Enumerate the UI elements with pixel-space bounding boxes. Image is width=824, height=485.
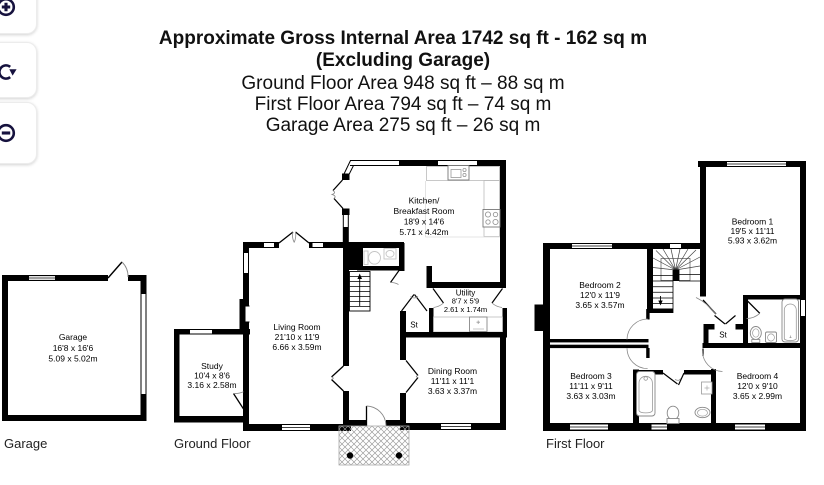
svg-text:3.65 x 2.99m: 3.65 x 2.99m: [733, 391, 782, 401]
svg-text:11'11 x 11'1: 11'11 x 11'1: [431, 376, 475, 386]
svg-text:Breakfast Room: Breakfast Room: [394, 206, 455, 216]
svg-text:3.16 x 2.58m: 3.16 x 2.58m: [187, 380, 236, 390]
svg-text:Study: Study: [201, 361, 223, 371]
svg-text:3.65 x 3.57m: 3.65 x 3.57m: [575, 300, 624, 310]
svg-text:St: St: [410, 321, 418, 330]
svg-text:St: St: [719, 331, 727, 340]
svg-text:Bedroom 2: Bedroom 2: [579, 280, 621, 290]
svg-text:5.09 x 5.02m: 5.09 x 5.02m: [48, 354, 97, 364]
svg-text:Living Room: Living Room: [273, 322, 320, 332]
svg-text:12'0 x 9'10: 12'0 x 9'10: [737, 381, 778, 391]
svg-text:Bedroom 4: Bedroom 4: [737, 371, 779, 381]
svg-text:10'4 x 8'6: 10'4 x 8'6: [194, 371, 230, 381]
svg-text:11'11 x 9'11: 11'11 x 9'11: [569, 381, 613, 391]
svg-text:18'9 x 14'6: 18'9 x 14'6: [404, 217, 445, 227]
svg-text:Garage: Garage: [4, 436, 47, 451]
svg-text:21'10 x 11'9: 21'10 x 11'9: [275, 332, 320, 342]
svg-text:19'5 x 11'11: 19'5 x 11'11: [730, 226, 774, 236]
svg-text:3.63 x 3.37m: 3.63 x 3.37m: [428, 386, 477, 396]
svg-text:Ground Floor: Ground Floor: [174, 436, 251, 451]
svg-text:3.63 x 3.03m: 3.63 x 3.03m: [566, 391, 615, 401]
svg-text:Bedroom 1: Bedroom 1: [732, 217, 774, 227]
svg-text:2.61 x 1.74m: 2.61 x 1.74m: [444, 305, 487, 314]
svg-text:12'0 x 11'9: 12'0 x 11'9: [580, 290, 620, 300]
svg-text:Dining Room: Dining Room: [428, 366, 477, 376]
svg-text:6.66 x 3.59m: 6.66 x 3.59m: [272, 342, 321, 352]
svg-text:16'8 x 16'6: 16'8 x 16'6: [53, 343, 94, 353]
svg-text:Garage: Garage: [59, 332, 88, 342]
svg-text:5.71 x 4.42m: 5.71 x 4.42m: [399, 227, 448, 237]
svg-text:First Floor: First Floor: [546, 436, 605, 451]
svg-text:Bedroom 3: Bedroom 3: [570, 371, 612, 381]
svg-text:5.93 x 3.62m: 5.93 x 3.62m: [728, 236, 777, 246]
svg-text:Kitchen/: Kitchen/: [409, 196, 440, 206]
